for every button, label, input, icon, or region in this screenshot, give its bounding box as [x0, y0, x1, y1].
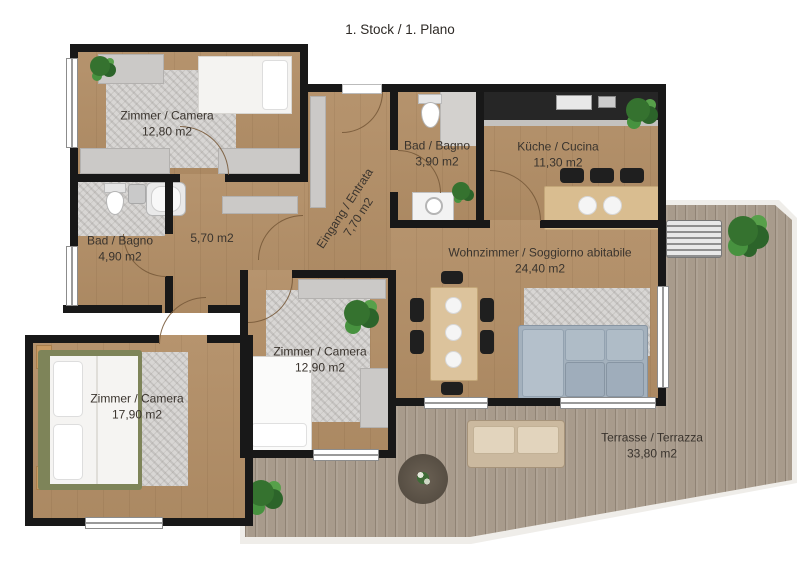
sofa-cushion: [473, 426, 515, 454]
dresser: [360, 368, 390, 428]
wall: [225, 174, 308, 182]
washer-door: [425, 197, 443, 215]
room-name: Terrasse / Terrazza: [601, 430, 703, 446]
cooktop: [556, 95, 592, 110]
dining-chair: [480, 330, 494, 354]
plate: [445, 324, 462, 341]
plant-icon: [344, 300, 370, 326]
dining-chair: [480, 298, 494, 322]
room-area: 4,90 m2: [87, 249, 153, 265]
dining-chair: [410, 330, 424, 354]
room-label-terrace: Terrasse / Terrazza 33,80 m2: [601, 430, 703, 461]
room-area: 12,90 m2: [273, 360, 366, 376]
room-label-kitchen: Küche / Cucina 11,30 m2: [517, 139, 598, 170]
room-name: Küche / Cucina: [517, 139, 598, 155]
hall-cabinet: [222, 196, 298, 214]
closet: [310, 96, 326, 208]
window: [85, 517, 163, 529]
wall: [245, 335, 253, 526]
pillow: [53, 361, 83, 417]
wall: [165, 182, 173, 234]
wall: [308, 84, 342, 92]
plant-icon: [452, 182, 470, 200]
floor-plan: 1. Stock / 1. Plano: [0, 0, 800, 565]
room-name: Bad / Bagno: [87, 233, 153, 249]
room-label-bedroom-1: Zimmer / Camera 12,80 m2: [120, 108, 213, 139]
wall: [388, 270, 396, 458]
window: [66, 246, 78, 306]
round-planter: [398, 454, 448, 504]
wall: [476, 92, 484, 228]
counter-front: [484, 120, 658, 126]
room-area: 11,30 m2: [517, 155, 598, 171]
wardrobe: [80, 148, 170, 174]
room-area: 12,80 m2: [120, 124, 213, 140]
sofa-chaise: [522, 329, 564, 397]
room-label-living-room: Wohnzimmer / Soggiorno abitabile 24,40 m…: [448, 245, 631, 276]
room-area: 24,40 m2: [448, 261, 631, 277]
plant-icon: [728, 216, 758, 246]
pillow: [251, 423, 307, 447]
room-label-bedroom-3: Zimmer / Camera 17,90 m2: [90, 391, 183, 422]
room-name: Zimmer / Camera: [90, 391, 183, 407]
wardrobe: [298, 279, 386, 299]
pillow: [53, 424, 83, 480]
room-area: 3,90 m2: [404, 154, 470, 170]
room-label-bath-2: Bad / Bagno 3,90 m2: [404, 138, 470, 169]
wall: [300, 44, 308, 182]
wall: [70, 44, 308, 52]
wall: [25, 335, 159, 343]
plate: [578, 196, 597, 215]
room-area: 5,70 m2: [190, 231, 233, 247]
wall: [63, 305, 162, 313]
window: [657, 286, 669, 388]
page-title: 1. Stock / 1. Plano: [0, 22, 800, 37]
sofa-cushion: [606, 362, 644, 397]
wall: [70, 174, 180, 182]
room-name: Zimmer / Camera: [120, 108, 213, 124]
plant-icon: [626, 98, 650, 122]
room-name: Bad / Bagno: [404, 138, 470, 154]
sofa-cushion: [565, 362, 605, 397]
window: [313, 449, 379, 461]
bar-stool: [620, 168, 644, 183]
kitchen-sink: [598, 96, 616, 108]
sofa-cushion: [517, 426, 559, 454]
wall: [292, 270, 396, 278]
sofa-cushion: [565, 329, 605, 361]
room-name: Zimmer / Camera: [273, 344, 366, 360]
window: [424, 397, 488, 409]
plate: [445, 297, 462, 314]
room-label-bath-1: Bad / Bagno 4,90 m2: [87, 233, 153, 264]
plant-icon: [90, 56, 110, 76]
wall: [165, 276, 173, 313]
wall: [25, 335, 33, 526]
dining-chair: [410, 298, 424, 322]
pillow: [262, 60, 288, 110]
wardrobe: [218, 148, 300, 174]
sofa-cushion: [606, 329, 644, 361]
wall: [540, 220, 666, 228]
dining-chair: [441, 382, 463, 395]
room-name: Wohnzimmer / Soggiorno abitabile: [448, 245, 631, 261]
wall: [380, 84, 666, 92]
room-label-bedroom-2: Zimmer / Camera 12,90 m2: [273, 344, 366, 375]
plate: [445, 351, 462, 368]
lounge-chair: [666, 220, 722, 258]
room-area: 17,90 m2: [90, 407, 183, 423]
wall: [390, 220, 490, 228]
room-label-hallway: 5,70 m2: [190, 231, 233, 247]
sink: [128, 184, 146, 204]
window: [66, 58, 78, 148]
wall: [390, 92, 398, 150]
room-area: 33,80 m2: [601, 446, 703, 462]
plate: [603, 196, 622, 215]
window: [560, 397, 656, 409]
